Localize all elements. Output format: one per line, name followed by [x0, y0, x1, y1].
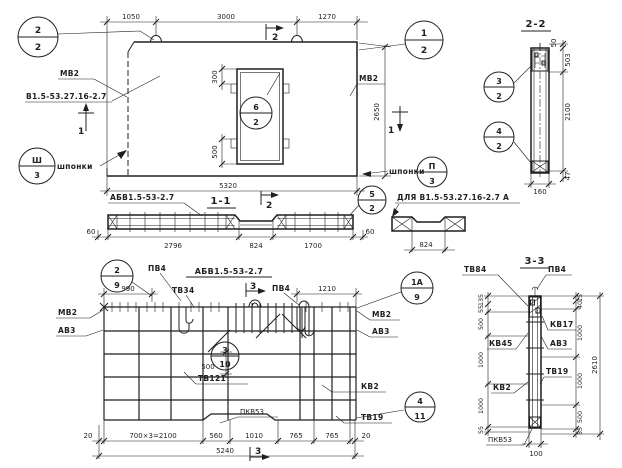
section-mark-1-right-label: 1: [388, 126, 394, 136]
dim-15: 15: [577, 294, 584, 302]
label-series: В1.5-53.27.16-2.7: [26, 92, 107, 101]
label-av3: АВ3: [550, 339, 568, 348]
plan-dimension-lines: [100, 16, 391, 196]
leader-lines: [514, 66, 531, 163]
label-tv34: ТВ34: [172, 286, 194, 295]
label-mv2-left: МВ2: [58, 308, 77, 317]
dimension-lines: [484, 292, 529, 436]
embed-mark: [231, 84, 237, 93]
leader-arrow-icon: [392, 208, 399, 217]
dim-60-right: 60: [366, 228, 375, 236]
embed-mark: [283, 84, 289, 93]
label-keys-left: шпонки: [57, 162, 93, 171]
section-arrow-icon: [258, 288, 266, 294]
dim-1270: 1270: [318, 13, 336, 21]
label-tv19: ТВ19: [546, 367, 568, 376]
dim-1000a: 1000: [478, 352, 485, 368]
dim-1210: 1210: [318, 285, 336, 293]
dim-135: 135: [478, 294, 485, 306]
balloon-bottom-text: 11: [414, 412, 426, 421]
dim-3000: 3000: [217, 13, 235, 21]
section-arrow-icon: [276, 25, 284, 31]
dimension-lines: [92, 221, 368, 240]
dimension-ticks: [104, 19, 388, 194]
callout-balloon-keys-right: П 3: [417, 157, 447, 187]
dim-2796: 2796: [164, 242, 182, 250]
dim-824-detail: 824: [419, 241, 433, 249]
dim-160: 160: [533, 188, 546, 196]
label-series: АБВ1.5-53-2.7: [110, 193, 174, 202]
label-tv84: ТВ84: [464, 265, 486, 274]
balloon-top-text: П: [429, 162, 436, 171]
balloon-bottom-text: 3: [429, 177, 435, 186]
label-kv45: КВ45: [489, 339, 512, 348]
dim-990: 990: [121, 285, 134, 293]
section-arrow-icon: [397, 124, 403, 132]
embed-bottom-cross: [530, 417, 541, 427]
dim-47: 47: [564, 172, 572, 181]
section-3-3-title: 3-3: [524, 256, 545, 267]
section-1-1-title: 1-1: [210, 196, 231, 207]
label-av3-left: АВ3: [58, 326, 76, 335]
callout-balloon-plan-tr: 1 2: [405, 21, 443, 59]
panel-outline: [107, 42, 357, 176]
dim-2100: 2100: [564, 103, 572, 121]
dim-1700: 1700: [304, 242, 322, 250]
label-tv19: ТВ19: [361, 413, 383, 422]
label-pkv53: ПКВ53: [240, 408, 264, 416]
dim-100: 100: [529, 450, 542, 458]
detail-bar-cross: [392, 217, 465, 231]
dim-5240: 5240: [216, 447, 234, 455]
dim-1000b: 1000: [478, 398, 485, 414]
lifting-loop-icon: [151, 36, 303, 42]
dim-2650: 2650: [373, 103, 381, 121]
callout-balloon-s22-bot: 4 2: [484, 122, 514, 152]
dim-55b: 55: [478, 426, 485, 434]
balloon-bottom-text: 9: [114, 281, 120, 290]
embed-mark: [283, 139, 289, 148]
label-mv2-right: МВ2: [359, 74, 378, 83]
section-mark-3-bottom-label: 3: [255, 447, 261, 457]
dim-55a: 55: [478, 305, 485, 313]
leader-arrow-icon: [117, 150, 127, 159]
section-mark-1-left-label: 1: [78, 127, 84, 137]
dim-300: 300: [211, 70, 219, 83]
dim-5320: 5320: [219, 182, 237, 190]
mesh-horizontal-bars: [104, 307, 356, 400]
balloon-top-text: Ш: [32, 156, 42, 165]
section-1-1: 1-1 АБВ1.5-53-2.7 2 60 2796 824 1700 60 …: [87, 191, 520, 253]
label-tv121: ТВ121: [198, 374, 226, 383]
balloon-bottom-text: 2: [35, 43, 41, 53]
balloon-bottom-text: 2: [496, 142, 502, 151]
dim-55-r: 55: [577, 427, 584, 435]
dim-503: 503: [564, 53, 572, 66]
balloon-top-text: 6: [253, 103, 259, 112]
label-mv2-right: МВ2: [372, 310, 391, 319]
section-mark-3-top-label: 3: [250, 282, 256, 292]
dim-20-right: 20: [362, 432, 371, 440]
balloon-top-text: 3: [496, 77, 502, 86]
dim-1050: 1050: [122, 13, 140, 21]
callout-balloon-plan-tl: 2 2: [18, 17, 58, 57]
detail-bar-outline: [392, 217, 465, 231]
callout-balloon-mesh-br: 4 11: [405, 392, 435, 422]
dim-60-left: 60: [87, 228, 96, 236]
label-pv4: ПВ4: [548, 265, 566, 274]
dim-50: 50: [550, 39, 558, 48]
dim-20-left: 20: [84, 432, 93, 440]
callout-balloon-s22-top: 3 2: [484, 72, 514, 102]
section-arrow-icon: [262, 454, 270, 460]
balloon-top-text: 1: [421, 29, 427, 39]
section-arrow-icon: [271, 192, 279, 198]
balloon-bottom-text: 2: [421, 46, 427, 56]
balloon-top-text: 4: [417, 397, 423, 406]
balloon-top-text: 5: [369, 190, 375, 199]
balloon-bottom-text: 2: [496, 92, 502, 101]
embed-mark: [231, 139, 237, 148]
door-opening-outline: [237, 69, 283, 164]
callout-balloon-mesh-mid: 3 10: [211, 342, 239, 370]
balloon-bottom-text: 2: [253, 118, 259, 127]
dim-500-mesh: 500: [201, 363, 214, 371]
embed-stud: [536, 308, 540, 313]
dim-1000b-r: 1000: [577, 373, 584, 389]
detail-label-leader: [393, 203, 520, 214]
section-mark-2-label: 2: [272, 33, 278, 43]
leader-lines: [58, 31, 405, 174]
dim-824: 824: [249, 242, 263, 250]
label-mv2-left: МВ2: [60, 69, 79, 78]
section-mark-2-label: 2: [266, 201, 272, 211]
section-arrow-icon: [83, 103, 89, 111]
label-kv2: КВ2: [493, 383, 511, 392]
dim-40: 40: [577, 301, 584, 309]
balloon-top-text: 3: [222, 346, 228, 355]
section-2-2-title: 2-2: [525, 19, 546, 30]
label-pkv53: ПКВ53: [488, 436, 512, 444]
drawing-sheet: 1050 3000 1270 5320 2650 300 500 2 1 1 М…: [0, 0, 622, 468]
balloon-top-text: 1А: [411, 278, 424, 287]
panel-plan-view: 1050 3000 1270 5320 2650 300 500 2 1 1 М…: [25, 13, 425, 196]
mesh-bottom-bar-with-recess: [104, 414, 356, 420]
section-2-2: 2-2 50 503 2100 47 160: [514, 19, 572, 196]
dim-700x3: 700×3=2100: [129, 432, 176, 440]
dimension-lines: [522, 428, 548, 448]
callout-balloons: 2 2 1 2 6 2 Ш 3 П 3 3 2 4: [18, 17, 514, 422]
dim-2610: 2610: [591, 356, 599, 374]
dim-500: 500: [211, 145, 219, 158]
balloon-leader: [350, 205, 359, 215]
door-opening-inner: [241, 73, 280, 161]
section-3-3: 3-3 ТВ84 ПВ4 КВ17 КВ45 АВ3 ТВ19 КВ2 ПКВ5…: [462, 256, 604, 458]
label-leader: [108, 203, 202, 216]
label-pv4-left: ПВ4: [148, 264, 166, 273]
dim-1010: 1010: [245, 432, 263, 440]
balloon-bottom-text: 2: [369, 204, 375, 213]
callout-balloon-mesh-tr: 1А 9: [401, 272, 433, 304]
dim-765-a: 765: [289, 432, 302, 440]
balloon-top-text: 4: [496, 127, 502, 136]
mesh-title: АБВ1.5-53-2.7: [195, 267, 263, 276]
balloon-top-text: 2: [114, 266, 120, 275]
callout-balloon-mesh-tl: 2 9: [101, 260, 133, 292]
embed-stud: [535, 53, 538, 57]
callout-balloon-keys-left: Ш 3: [19, 148, 55, 184]
panel-section-outline: [529, 296, 541, 428]
callout-balloon-s11: 5 2: [350, 186, 386, 215]
balloon-bottom-text: 10: [219, 360, 231, 369]
label-av3-right: АВ3: [372, 327, 390, 336]
technical-drawing: 1050 3000 1270 5320 2650 300 500 2 1 1 М…: [0, 0, 622, 468]
detail-label: ДЛЯ В1.5-53.27.16-2.7 А: [397, 193, 509, 202]
label-kv2: КВ2: [361, 382, 379, 391]
balloon-top-text: 2: [35, 26, 41, 36]
label-pv4-mid: ПВ4: [272, 284, 290, 293]
balloon-bottom-text: 9: [414, 293, 420, 302]
callout-balloon-opening: 6 2: [240, 97, 272, 129]
dim-1000a-r: 1000: [577, 325, 584, 341]
balloon-bottom-text: 3: [34, 171, 40, 180]
dim-560: 560: [209, 432, 222, 440]
label-kv17: КВ17: [550, 320, 573, 329]
dim-765-b: 765: [325, 432, 338, 440]
dim-500-r: 500: [577, 411, 584, 423]
dim-500: 500: [478, 318, 485, 330]
